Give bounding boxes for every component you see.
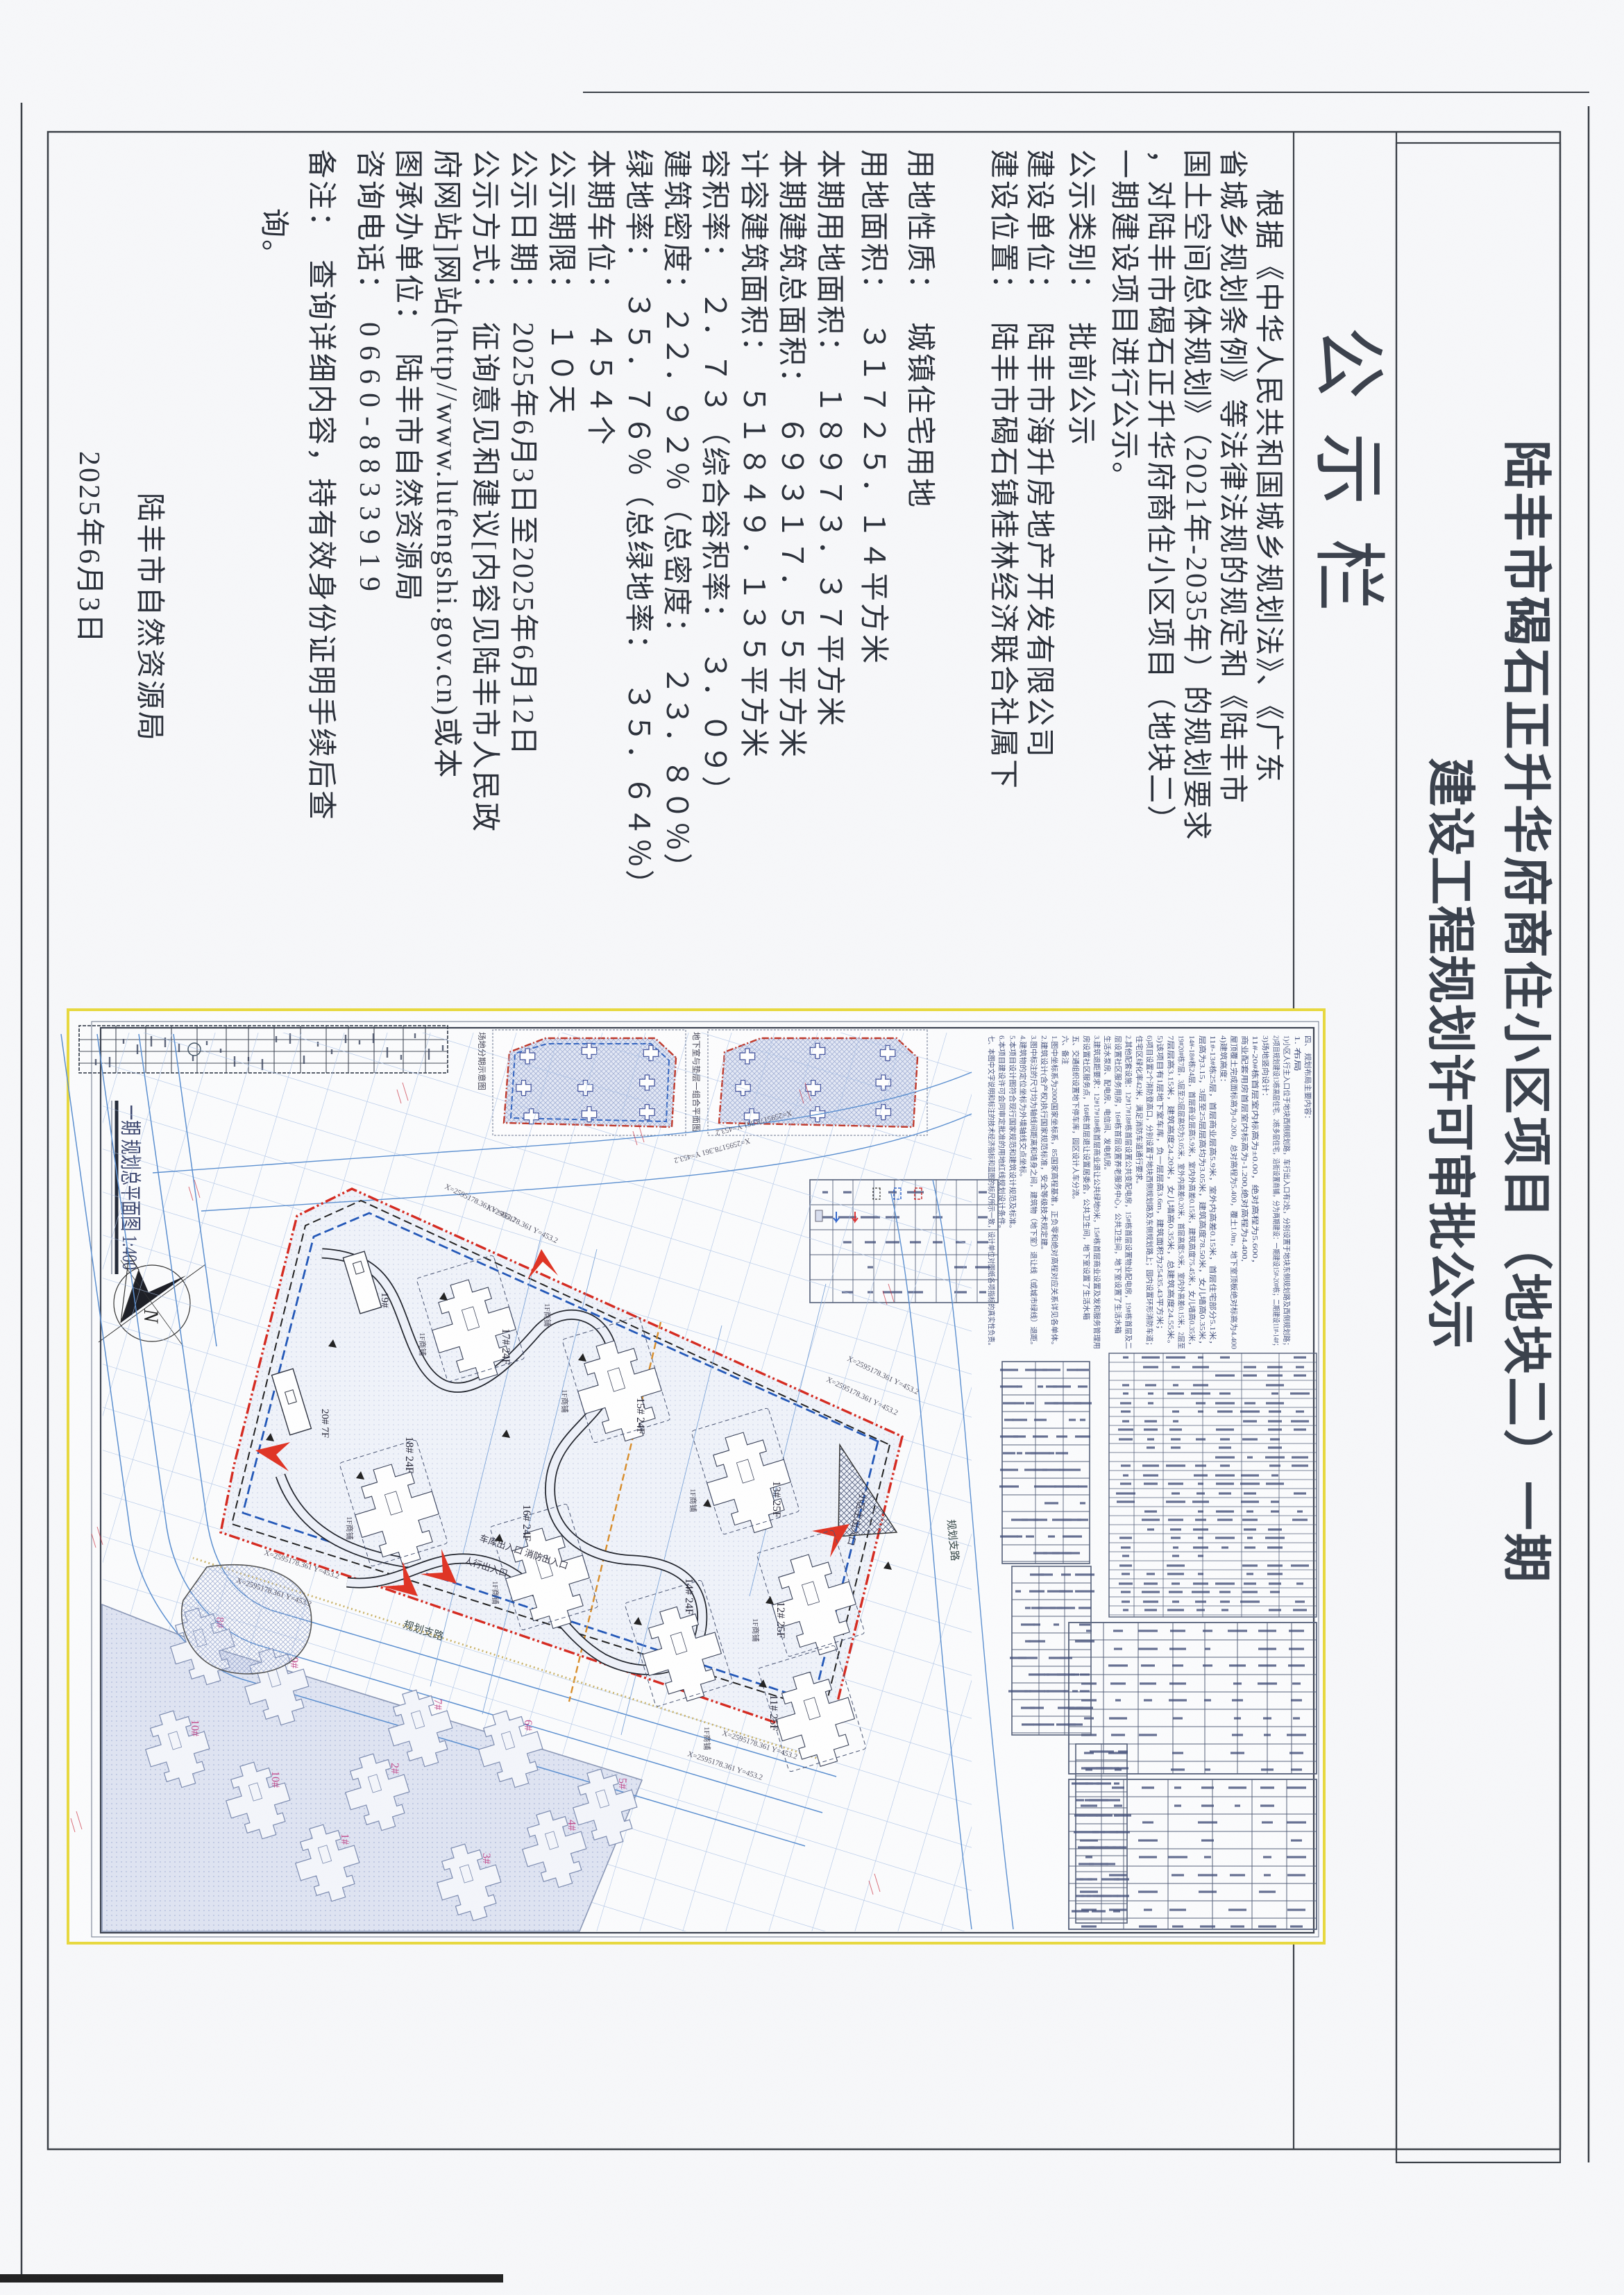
svg-text:16# 24F: 16# 24F [521,1505,532,1541]
svg-text:1F商铺: 1F商铺 [543,1303,552,1327]
svg-text:地下室与垫层一组合平面图: 地下室与垫层一组合平面图 [691,1032,702,1132]
svg-text:10#: 10# [269,1771,281,1788]
svg-text:1. 布局: 1. 布局 [1293,1035,1301,1072]
svg-text:1F商铺: 1F商铺 [491,1581,500,1604]
svg-text:1F商铺: 1F商铺 [560,1389,570,1413]
svg-text:1F商铺: 1F商铺 [418,1332,428,1356]
svg-text:场地分期示意图: 场地分期示意图 [477,1032,487,1090]
svg-text:2#: 2# [389,1763,400,1774]
svg-text:17# 24F: 17# 24F [500,1328,511,1365]
svg-text:7#: 7# [432,1699,443,1710]
svg-text:1F商铺: 1F商铺 [345,1516,355,1540]
svg-text:6#: 6# [522,1720,534,1731]
svg-text:19#: 19# [379,1292,390,1308]
svg-text:1F商铺: 1F商铺 [751,1618,761,1642]
svg-text:5#: 5# [616,1778,628,1789]
svg-text:11# 25F: 11# 25F [768,1695,779,1731]
svg-text:1F商铺: 1F商铺 [688,1489,698,1512]
svg-text:4#: 4# [566,1820,577,1831]
svg-text:1#: 1# [339,1834,350,1845]
svg-text:10#: 10# [189,1720,201,1736]
svg-text:一期 规划总平面图 1:400: 一期 规划总平面图 1:400 [118,1105,142,1270]
svg-text:N: N [139,1308,162,1324]
svg-text:20# 7F: 20# 7F [319,1409,330,1438]
svg-text:13# 25F: 13# 25F [770,1481,782,1518]
svg-text:1F商铺: 1F商铺 [702,1727,712,1750]
svg-text:3#: 3# [480,1853,492,1864]
